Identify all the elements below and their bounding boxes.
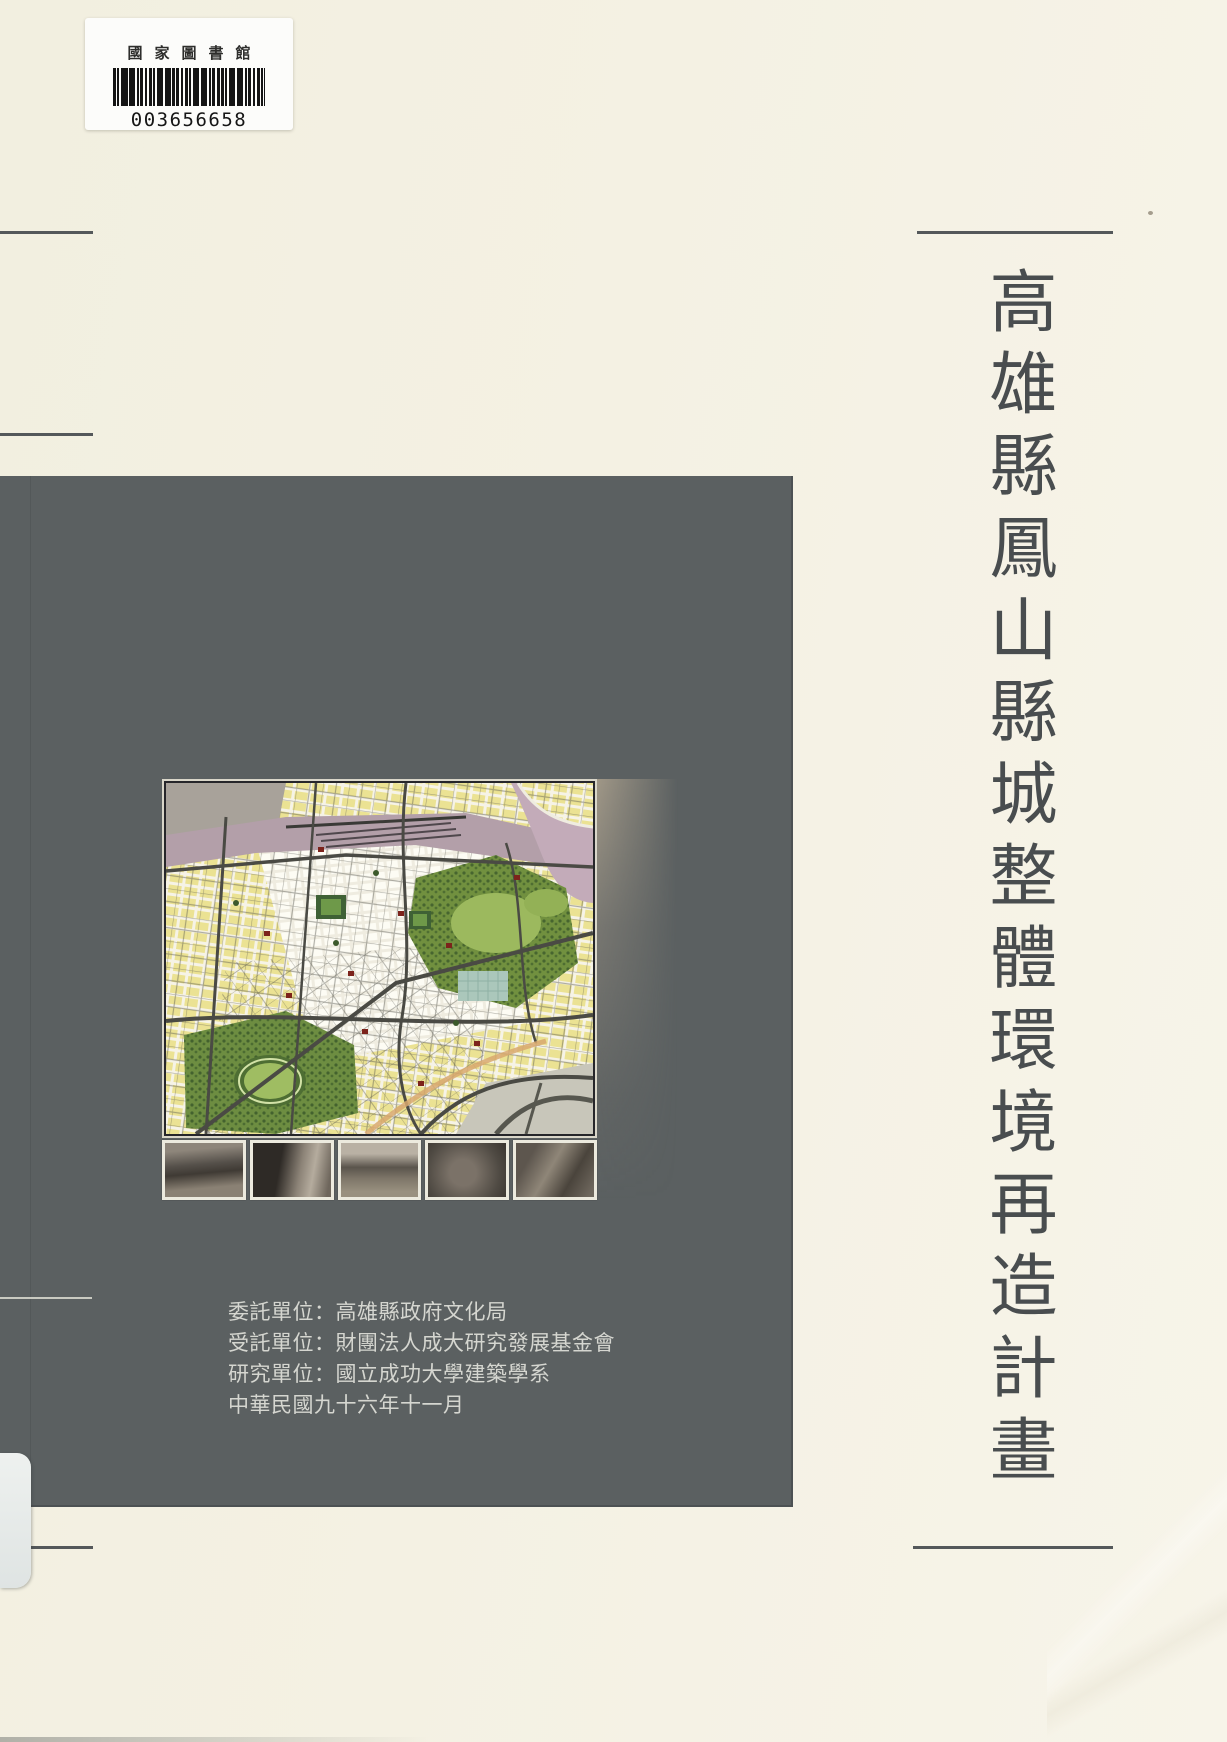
library-barcode-label: 國家圖書館 003656658: [85, 18, 293, 130]
page-edge-shadow: [0, 1737, 430, 1742]
town-plan-map: [166, 783, 593, 1134]
library-name: 國家圖書館: [85, 42, 293, 63]
paper-wrinkle: [1047, 1462, 1227, 1742]
map-illustration: [162, 779, 597, 1200]
photo-thumbnail: [513, 1140, 597, 1200]
spine-sticker: [0, 1453, 31, 1588]
photo-strip: [162, 1140, 597, 1200]
book-cover: 國家圖書館 003656658: [0, 0, 1227, 1742]
cover-title: 高雄縣鳳山縣城整體環境再造計畫: [982, 266, 1050, 1526]
credits-block: 委託單位：高雄縣政府文化局 受託單位：財團法人成大研究發展基金會 研究單位：國立…: [228, 1297, 615, 1421]
credit-line-trustee: 受託單位：財團法人成大研究發展基金會: [228, 1328, 615, 1359]
credit-line-date: 中華民國九十六年十一月: [228, 1390, 615, 1421]
credit-line-commissioner: 委託單位：高雄縣政府文化局: [228, 1297, 615, 1328]
barcode-number: 003656658: [85, 109, 293, 131]
map-edge-glow: [593, 779, 685, 1200]
barcode-icon: [113, 68, 265, 106]
registration-mark: [0, 231, 93, 234]
registration-mark: [0, 433, 93, 436]
photo-thumbnail: [338, 1140, 422, 1200]
title-rule-top: [917, 231, 1113, 234]
paper-speck: [1148, 211, 1153, 215]
map-frame: [162, 779, 597, 1138]
photo-thumbnail: [250, 1140, 334, 1200]
panel-crease: [30, 476, 31, 1507]
photo-thumbnail: [425, 1140, 509, 1200]
photo-thumbnail: [162, 1140, 246, 1200]
credit-line-research: 研究單位：國立成功大學建築學系: [228, 1359, 615, 1390]
panel-light-line: [0, 1297, 92, 1299]
cover-panel: 委託單位：高雄縣政府文化局 受託單位：財團法人成大研究發展基金會 研究單位：國立…: [0, 476, 793, 1507]
